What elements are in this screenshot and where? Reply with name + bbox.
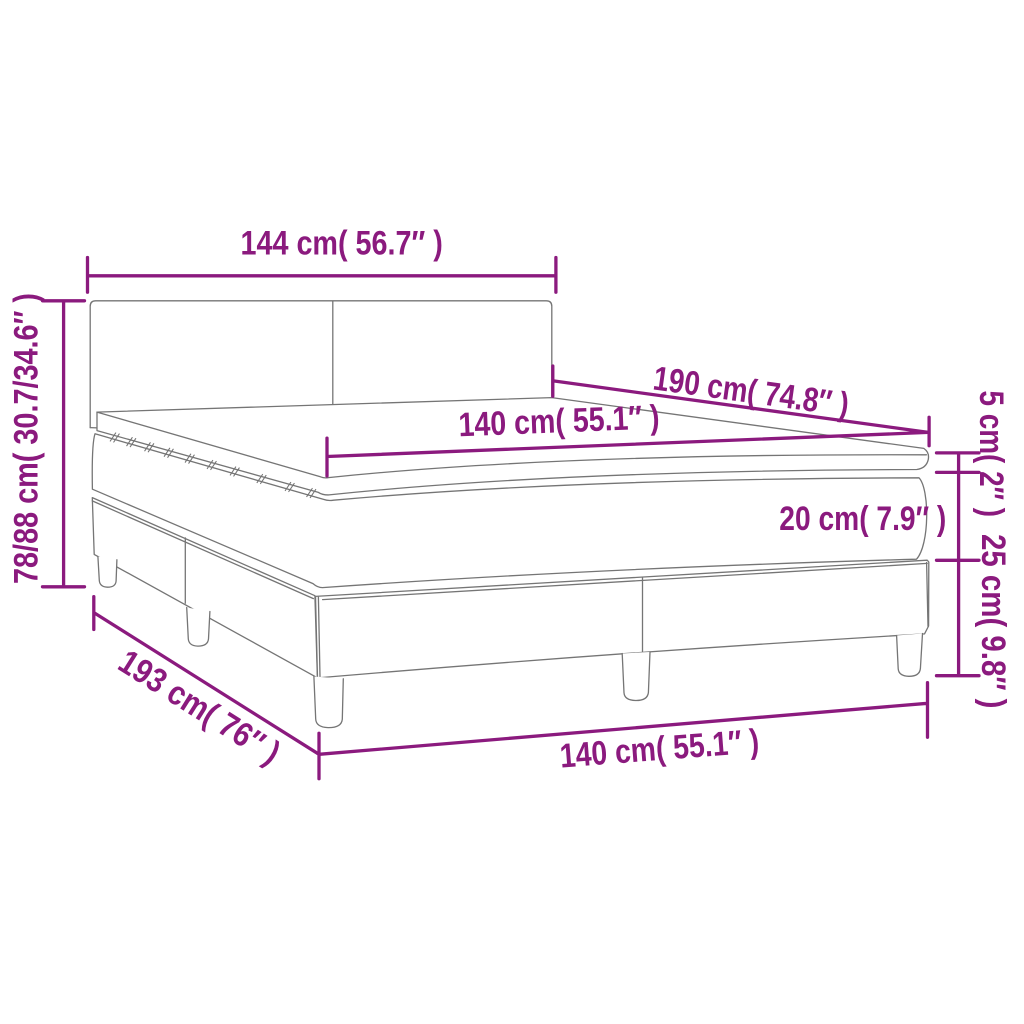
svg-text:5 cm( 2″ ): 5 cm( 2″ ) xyxy=(972,391,1010,518)
svg-text:140 cm( 55.1″ ): 140 cm( 55.1″ ) xyxy=(458,398,660,444)
svg-text:78/88 cm( 30.7/34.6″ ): 78/88 cm( 30.7/34.6″ ) xyxy=(8,293,46,584)
svg-text:20 cm( 7.9″ ): 20 cm( 7.9″ ) xyxy=(779,500,946,538)
svg-text:25 cm( 9.8″ ): 25 cm( 9.8″ ) xyxy=(974,534,1012,708)
svg-text:144 cm( 56.7″ ): 144 cm( 56.7″ ) xyxy=(241,225,443,263)
